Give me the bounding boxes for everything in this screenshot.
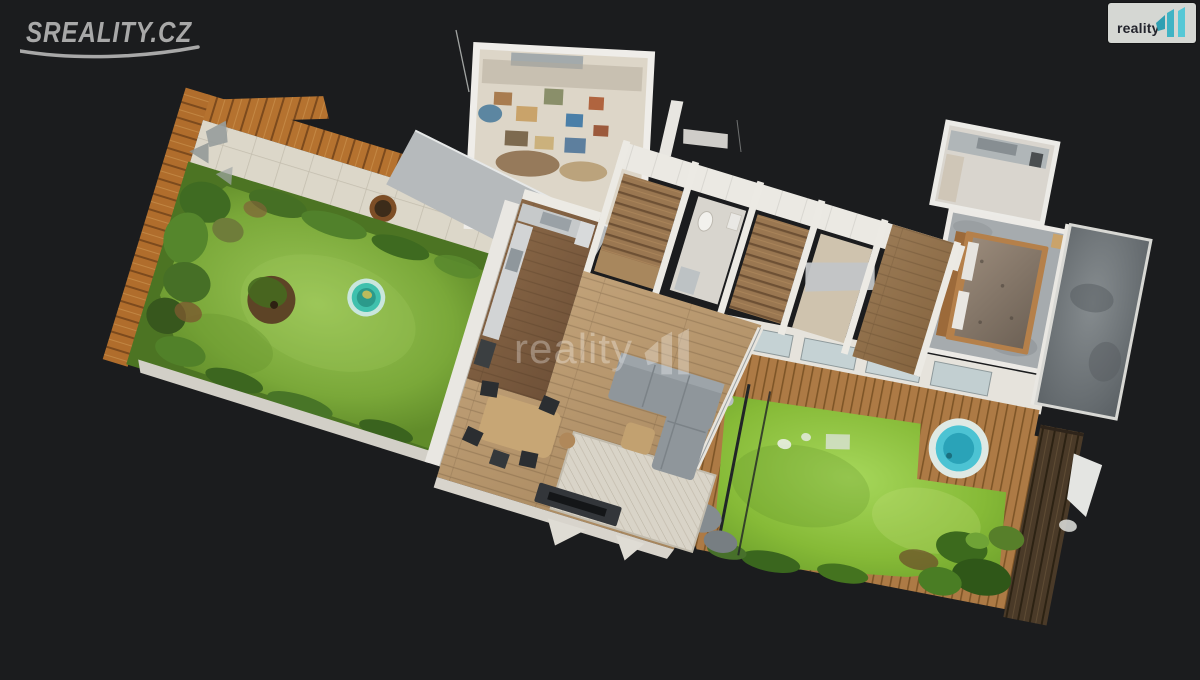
reality11-badge-text: reality bbox=[1117, 20, 1160, 36]
scan-artifact-line bbox=[737, 120, 741, 152]
sreality-logo: SREALITY.CZ bbox=[20, 12, 250, 68]
box bbox=[564, 137, 586, 153]
scan-artifact-line bbox=[456, 30, 469, 92]
box bbox=[588, 97, 604, 111]
sreality-logo-text: SREALITY.CZ bbox=[26, 17, 192, 49]
picnic-blanket bbox=[826, 434, 850, 449]
wall-fragment bbox=[655, 98, 687, 158]
dollhouse-3d-view[interactable] bbox=[0, 0, 1200, 675]
box bbox=[516, 106, 538, 122]
hallway-floor bbox=[729, 214, 809, 324]
box bbox=[566, 113, 584, 127]
reality11-badge-icon bbox=[1155, 6, 1189, 40]
box bbox=[593, 125, 609, 137]
box bbox=[534, 136, 554, 150]
box bbox=[505, 130, 529, 146]
reality11-badge: reality bbox=[1108, 3, 1196, 43]
box bbox=[494, 92, 513, 106]
wall-fragment bbox=[679, 121, 731, 156]
chair bbox=[480, 380, 499, 397]
photo-viewer-stage: reality SREALITY.CZ reality bbox=[0, 0, 1200, 675]
box bbox=[544, 88, 564, 105]
